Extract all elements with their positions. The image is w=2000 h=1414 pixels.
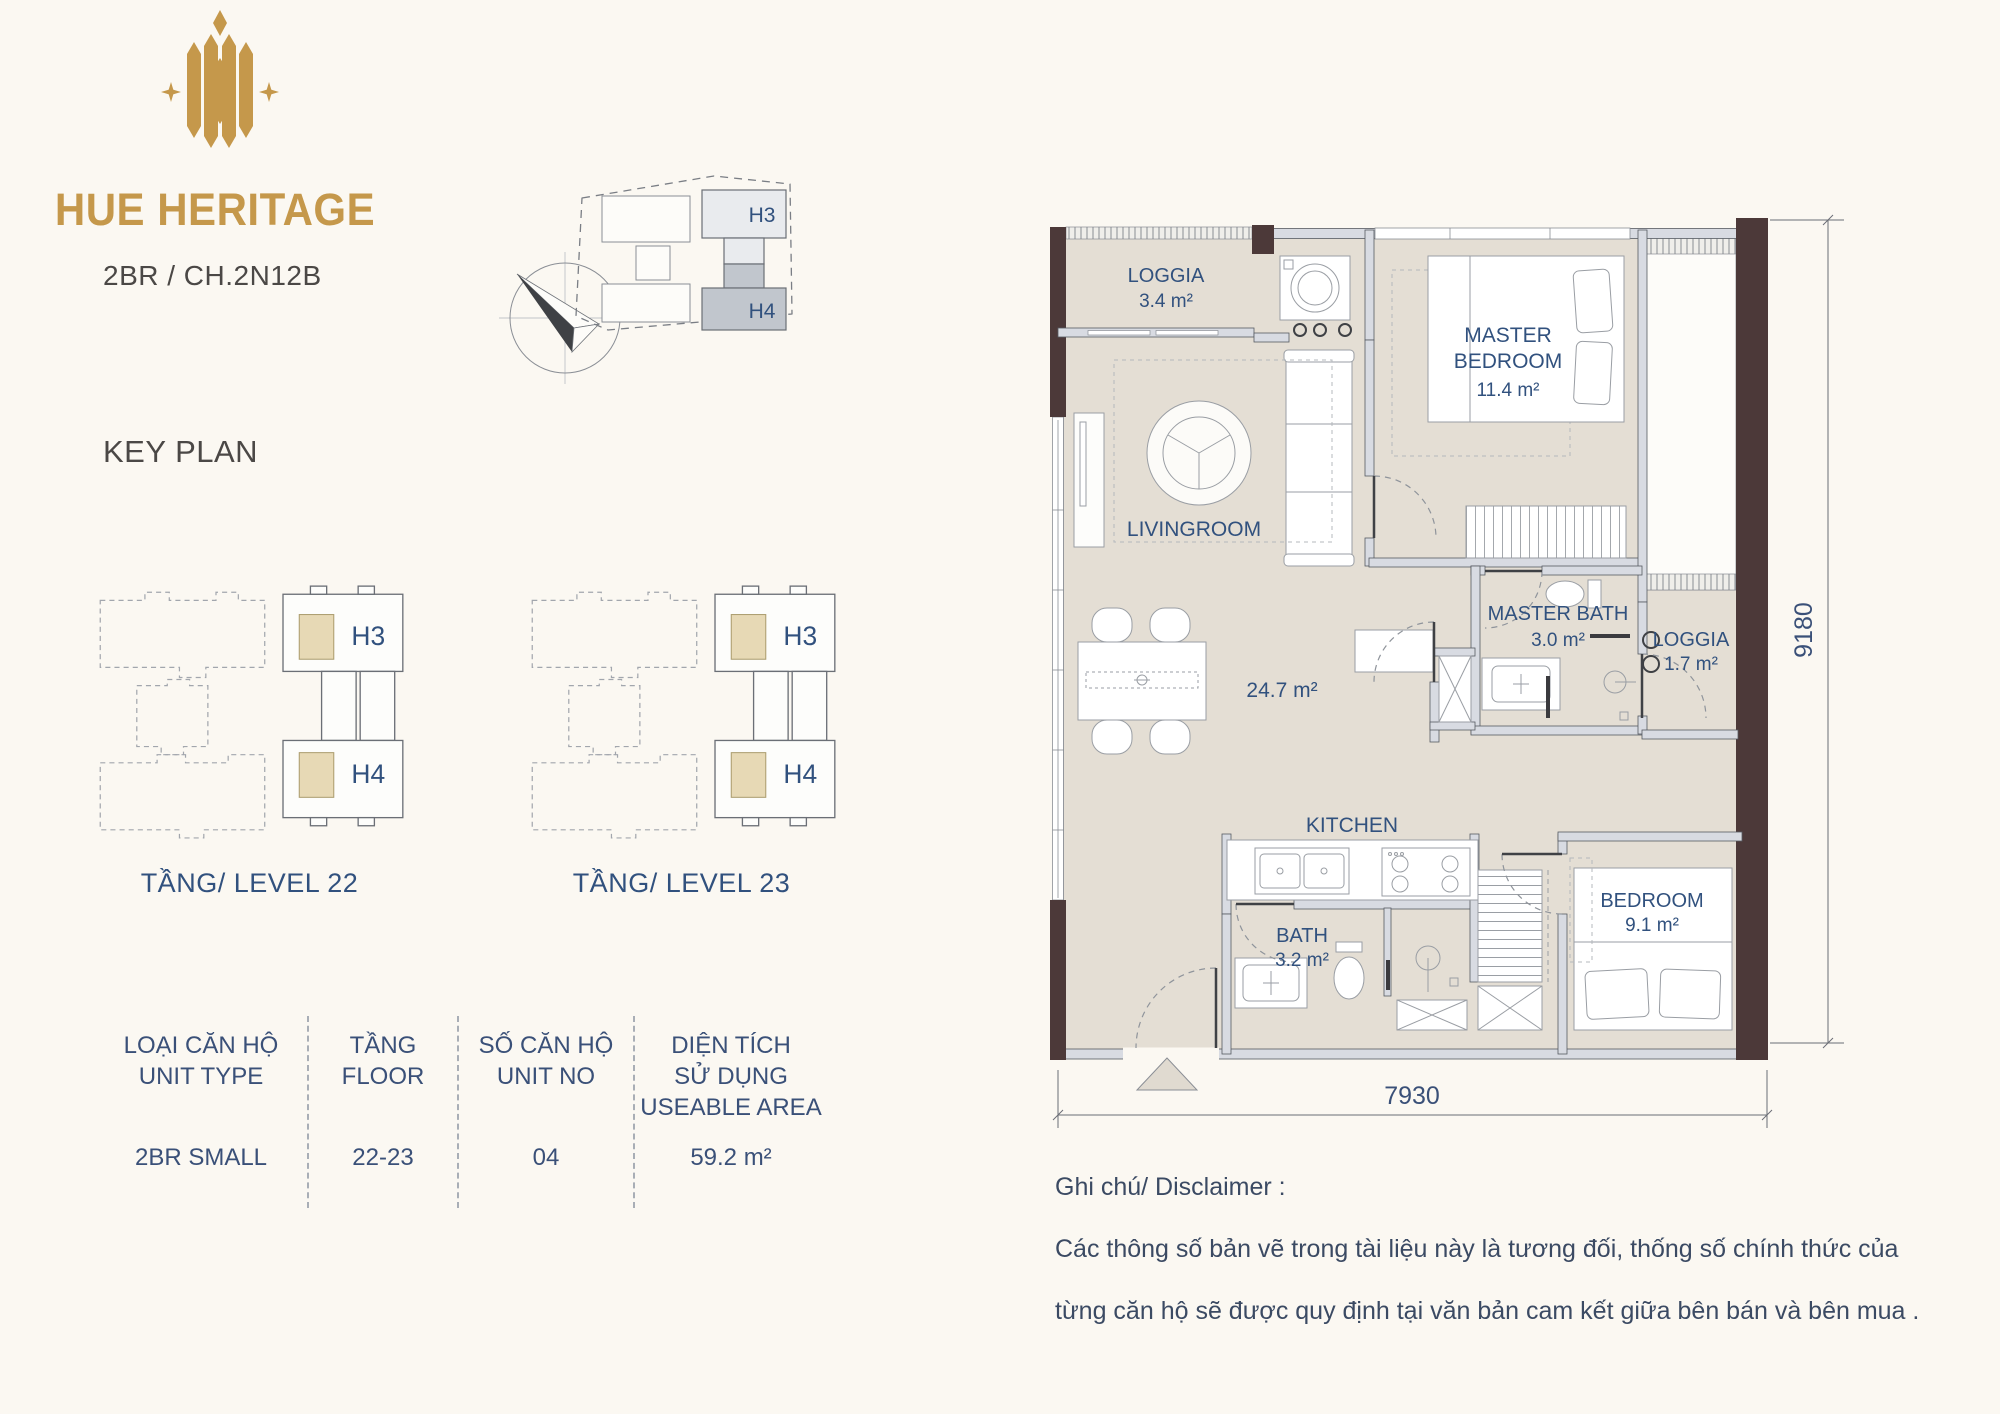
tv-console-icon (1074, 413, 1104, 547)
useable-area-value: 59.2 m² (635, 1144, 827, 1172)
col-header: SỐ CĂN HỘ UNIT NO (459, 1030, 633, 1130)
stove-icon (1382, 848, 1470, 896)
key-plan-other-tower (602, 196, 690, 322)
shaft-box-icon (1439, 656, 1471, 722)
level-22-unit-h4 (299, 753, 334, 798)
level-22-h4-label: H4 (351, 759, 385, 789)
bath-label: BATH (1276, 925, 1328, 947)
kitchen-label: KITCHEN (1306, 814, 1398, 837)
key-plan-diagram: H3 H4 (566, 168, 801, 340)
loggia-top-label: LOGGIA (1128, 265, 1205, 287)
washing-machine-icon (1280, 256, 1350, 320)
col-header: TẦNG FLOOR (309, 1030, 457, 1130)
col-header: LOẠI CĂN HỘ UNIT TYPE (95, 1030, 307, 1130)
entrance-marker (1137, 1058, 1197, 1090)
loggia-right-area: 1.7 m² (1664, 654, 1718, 675)
level-22-unit-h3 (299, 615, 334, 660)
floor-plan: LOGGIA 3.4 m² MASTER BEDROOM 11.4 m² LIV… (1030, 170, 1880, 1170)
loggia-right-label: LOGGIA (1653, 629, 1730, 651)
level-23-h3-label: H3 (783, 621, 817, 651)
hall-cabinet-icon (1355, 630, 1433, 672)
unit-code: 2BR / CH.2N12B (103, 260, 322, 292)
bedroom-area: 9.1 m² (1625, 915, 1679, 936)
disclaimer-line: từng căn hộ sẽ được quy định tại văn bản… (1055, 1280, 1935, 1342)
master-bedroom-label: BEDROOM (1454, 350, 1563, 373)
master-bath-label: MASTER BATH (1488, 603, 1629, 625)
key-plan-h4-label: H4 (749, 300, 776, 323)
stairs-icon (1478, 870, 1548, 982)
unit-info-table: LOẠI CĂN HỘ UNIT TYPE 2BR SMALL TẦNG FLO… (95, 1016, 827, 1208)
level-22-label: TẦNG/ LEVEL 22 (92, 868, 407, 899)
table-col-unit-type: LOẠI CĂN HỘ UNIT TYPE 2BR SMALL (95, 1016, 307, 1208)
table-col-floor: TẦNG FLOOR 22-23 (307, 1016, 457, 1208)
level-22-h3-label: H3 (351, 621, 385, 651)
master-bedroom-label: MASTER (1464, 324, 1552, 347)
level-23-other-tower (532, 592, 696, 838)
master-wardrobe-icon (1466, 506, 1626, 558)
master-bedroom-area: 11.4 m² (1476, 380, 1539, 401)
level-23-unit-h3 (731, 615, 766, 660)
unit-type-value: 2BR SMALL (95, 1144, 307, 1172)
key-plan-h3-label: H3 (749, 204, 776, 227)
living-area-value: 24.7 m² (1246, 679, 1317, 702)
level-23-h4-label: H4 (783, 759, 817, 789)
level-22-diagram: H3 H4 (92, 578, 407, 842)
void-strip (1646, 238, 1736, 590)
round-table-icon (1147, 401, 1251, 505)
level-22-other-tower (100, 592, 264, 838)
sofa-icon (1284, 350, 1354, 566)
livingroom-label: LIVINGROOM (1127, 518, 1261, 541)
level-23-diagram: H3 H4 (524, 578, 839, 842)
bedroom-label: BEDROOM (1600, 890, 1703, 912)
hue-heritage-emblem-icon (145, 8, 295, 186)
disclaimer-title: Ghi chú/ Disclaimer : (1055, 1156, 1935, 1218)
unit-no-value: 04 (459, 1144, 633, 1172)
dimension-bottom: 7930 (1384, 1082, 1440, 1110)
key-plan-title: KEY PLAN (103, 434, 258, 470)
table-col-useable-area: DIỆN TÍCH SỬ DỤNG USEABLE AREA 59.2 m² (633, 1016, 827, 1208)
master-bath-area: 3.0 m² (1531, 630, 1585, 651)
level-23-label: TẦNG/ LEVEL 23 (524, 868, 839, 899)
disclaimer: Ghi chú/ Disclaimer : Các thông số bản v… (1055, 1156, 1935, 1342)
brand-name: HUE HERITAGE (40, 184, 390, 236)
bath-toilet-icon (1334, 942, 1364, 999)
entry-opening (1123, 1048, 1219, 1061)
floor-value: 22-23 (309, 1144, 457, 1172)
loggia-top-area: 3.4 m² (1139, 291, 1193, 312)
table-col-unit-no: SỐ CĂN HỘ UNIT NO 04 (457, 1016, 633, 1208)
bath-area: 3.2 m² (1275, 950, 1329, 971)
dimension-right: 9180 (1790, 602, 1818, 658)
brochure-page: HUE HERITAGE 2BR / CH.2N12B KEY PLAN H3 … (0, 0, 2000, 1414)
col-header: DIỆN TÍCH SỬ DỤNG USEABLE AREA (635, 1030, 827, 1130)
level-23-unit-h4 (731, 753, 766, 798)
disclaimer-line: Các thông số bản vẽ trong tài liệu này l… (1055, 1218, 1935, 1280)
